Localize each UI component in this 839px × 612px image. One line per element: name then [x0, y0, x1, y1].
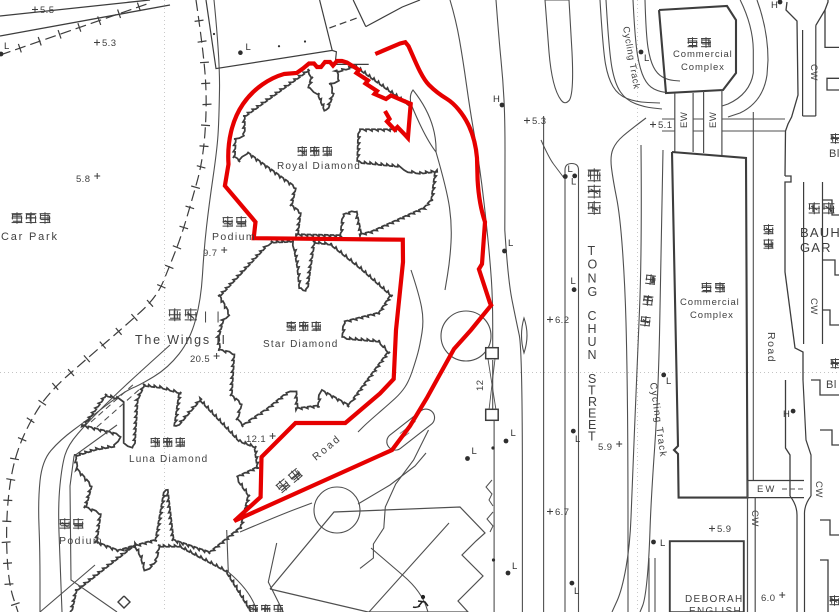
svg-text:C: C	[588, 309, 597, 323]
svg-text:9.7: 9.7	[203, 248, 217, 259]
svg-text:U: U	[588, 335, 597, 349]
svg-text:Podium: Podium	[212, 231, 256, 243]
svg-text:G: G	[588, 285, 598, 299]
svg-text:L: L	[660, 538, 665, 549]
svg-text:L: L	[246, 42, 251, 53]
svg-text:L: L	[571, 276, 576, 287]
svg-text:L: L	[575, 434, 580, 445]
svg-text:EW: EW	[708, 112, 719, 128]
svg-text:H: H	[771, 0, 778, 11]
svg-text:L: L	[512, 561, 517, 572]
svg-text:Luna Diamond: Luna Diamond	[129, 454, 208, 465]
svg-text:5.8: 5.8	[76, 174, 90, 185]
svg-text:The Wings II: The Wings II	[135, 333, 227, 347]
svg-text:5.5: 5.5	[40, 5, 54, 16]
svg-text:Road: Road	[765, 332, 777, 363]
svg-text:Complex: Complex	[681, 62, 725, 73]
svg-text:Complex: Complex	[690, 310, 734, 321]
svg-text:Commercial: Commercial	[673, 49, 733, 60]
svg-text:| |: | |	[204, 309, 223, 323]
svg-text:T: T	[588, 430, 596, 444]
svg-text:CW: CW	[749, 510, 760, 527]
svg-text:ENGLISH: ENGLISH	[689, 606, 742, 612]
svg-text:O: O	[588, 258, 598, 272]
svg-text:12: 12	[475, 379, 486, 391]
svg-text:Bl: Bl	[829, 148, 839, 160]
svg-text:Car Park: Car Park	[1, 231, 59, 243]
svg-text:L: L	[508, 238, 513, 249]
svg-text:5.3: 5.3	[102, 38, 116, 49]
svg-text:N: N	[588, 271, 597, 285]
svg-text:L: L	[568, 164, 573, 175]
svg-text:L: L	[571, 177, 576, 188]
svg-text:6.7: 6.7	[555, 507, 569, 518]
svg-text:5.1: 5.1	[658, 120, 672, 131]
svg-text:H: H	[588, 322, 597, 336]
svg-text:BAUH: BAUH	[800, 225, 839, 240]
svg-text:Star Diamond: Star Diamond	[263, 339, 339, 350]
svg-text:CW: CW	[813, 481, 824, 498]
svg-text:6.0: 6.0	[761, 593, 775, 604]
svg-text:Bl: Bl	[826, 379, 837, 391]
svg-text:L: L	[666, 376, 671, 387]
svg-text:5.9: 5.9	[598, 442, 612, 453]
svg-text:20.5: 20.5	[190, 354, 210, 365]
svg-text:L: L	[574, 586, 579, 597]
svg-text:GAR: GAR	[800, 240, 832, 255]
svg-text:6.2: 6.2	[555, 315, 569, 326]
svg-text:L: L	[472, 446, 477, 457]
svg-text:DEBORAH: DEBORAH	[685, 594, 744, 605]
svg-text:L: L	[644, 53, 649, 64]
svg-text:H: H	[783, 409, 790, 420]
svg-text:CW: CW	[808, 298, 819, 315]
svg-text:L: L	[4, 41, 9, 52]
svg-text:EW: EW	[757, 484, 776, 495]
svg-text:12.1: 12.1	[246, 434, 266, 445]
svg-text:Royal Diamond: Royal Diamond	[277, 161, 361, 172]
svg-text:N: N	[588, 348, 597, 362]
svg-text:5.3: 5.3	[532, 116, 546, 127]
svg-text:L: L	[511, 428, 516, 439]
svg-text:CW: CW	[808, 64, 819, 81]
svg-text:EW: EW	[679, 112, 690, 128]
svg-text:Podium: Podium	[59, 535, 103, 547]
svg-text:Commercial: Commercial	[680, 297, 740, 308]
svg-text:5.9: 5.9	[717, 524, 731, 535]
svg-text:H: H	[493, 94, 500, 105]
svg-text:T: T	[588, 244, 596, 258]
